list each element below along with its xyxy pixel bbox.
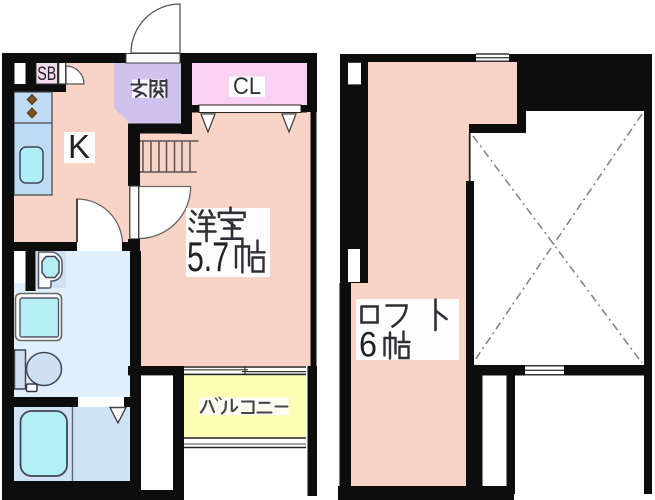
svg-text:SB: SB [37,64,56,85]
svg-text:K: K [68,128,90,165]
svg-text:CL: CL [233,73,261,100]
svg-text:6: 6 [359,326,377,365]
svg-text:5.7: 5.7 [187,233,229,280]
